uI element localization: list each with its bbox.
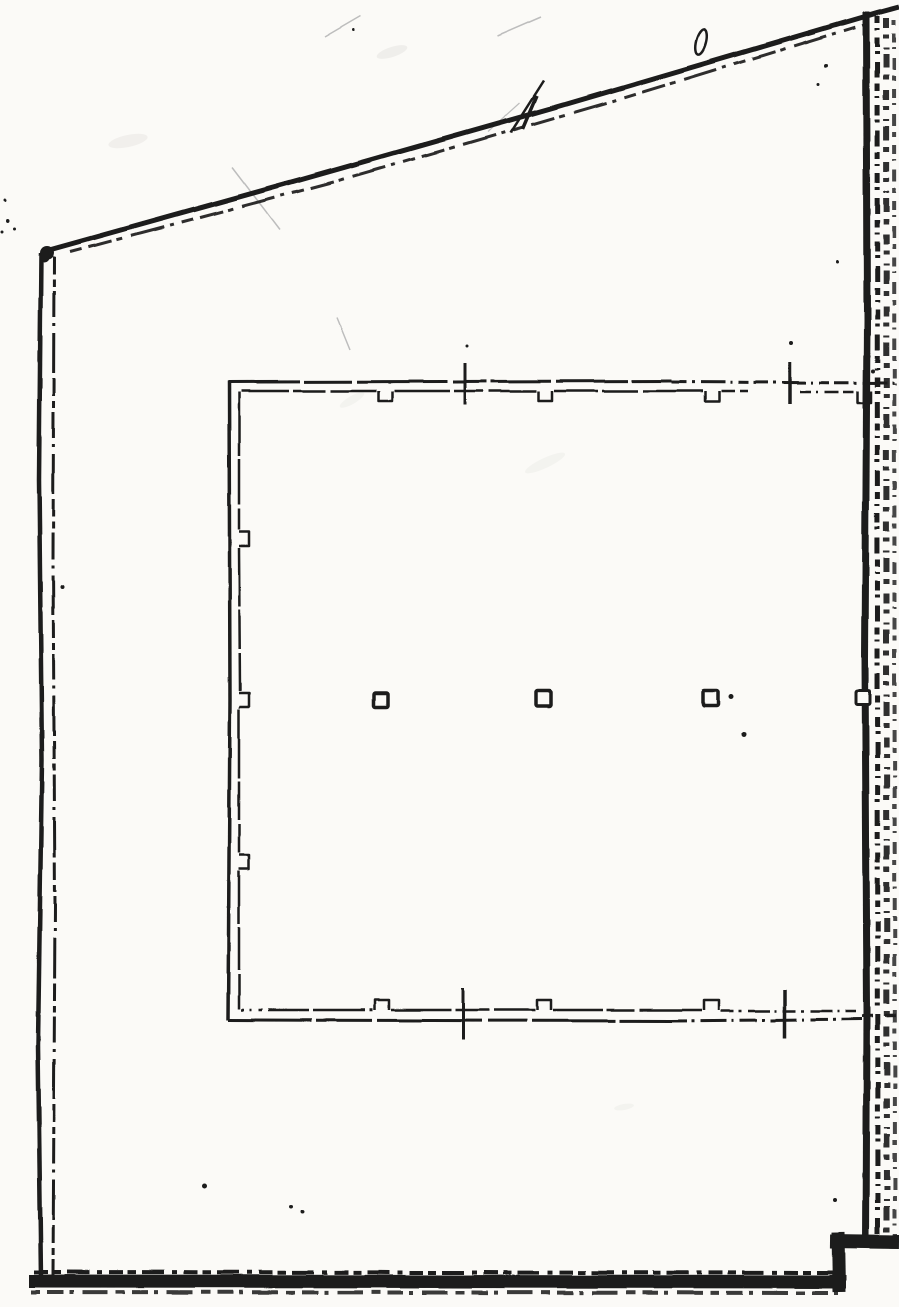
ink-speck-6 bbox=[39, 253, 49, 263]
slab-bottom-outer-line bbox=[228, 1020, 670, 1021]
ink-speck-9 bbox=[289, 1205, 293, 1209]
ink-speck-20 bbox=[871, 369, 875, 373]
column-square-1 bbox=[374, 693, 388, 707]
column-square-3 bbox=[703, 691, 718, 706]
ink-speck-16 bbox=[466, 345, 469, 348]
ink-speck-17 bbox=[833, 1198, 837, 1202]
ink-speck-1 bbox=[6, 219, 10, 223]
floor-plan-canvas bbox=[0, 0, 899, 1307]
ink-speck-2 bbox=[14, 228, 17, 231]
right-wall-core bbox=[865, 12, 867, 1246]
ink-speck-19 bbox=[837, 261, 840, 264]
bottom-step-ledge bbox=[830, 1241, 899, 1242]
ink-speck-11 bbox=[729, 695, 734, 700]
scanned-plan-page: Scanned architectural floor plan sketch bbox=[0, 0, 899, 1307]
paper-background bbox=[0, 0, 899, 1307]
ink-speck-14 bbox=[817, 84, 820, 87]
right-wall-texture-1 bbox=[877, 16, 878, 1245]
ink-speck-13 bbox=[824, 64, 828, 68]
ink-speck-10 bbox=[301, 1210, 305, 1214]
ink-speck-12 bbox=[742, 732, 747, 737]
bottom-wall-core bbox=[29, 1281, 846, 1282]
ink-speck-4 bbox=[1, 231, 4, 234]
slab-left-outer-line bbox=[228, 381, 230, 1020]
ink-speck-3 bbox=[4, 199, 7, 202]
ink-speck-15 bbox=[789, 341, 793, 345]
slab-top-centerline bbox=[672, 382, 899, 383]
column-square-2 bbox=[536, 691, 551, 706]
ink-speck-8 bbox=[203, 1184, 208, 1189]
wall-notch-square bbox=[856, 691, 870, 705]
slab-left-inner-b bbox=[239, 548, 240, 691]
ink-speck-7 bbox=[60, 585, 64, 589]
right-wall-texture-3 bbox=[894, 20, 895, 1238]
ink-speck-18 bbox=[353, 29, 356, 32]
